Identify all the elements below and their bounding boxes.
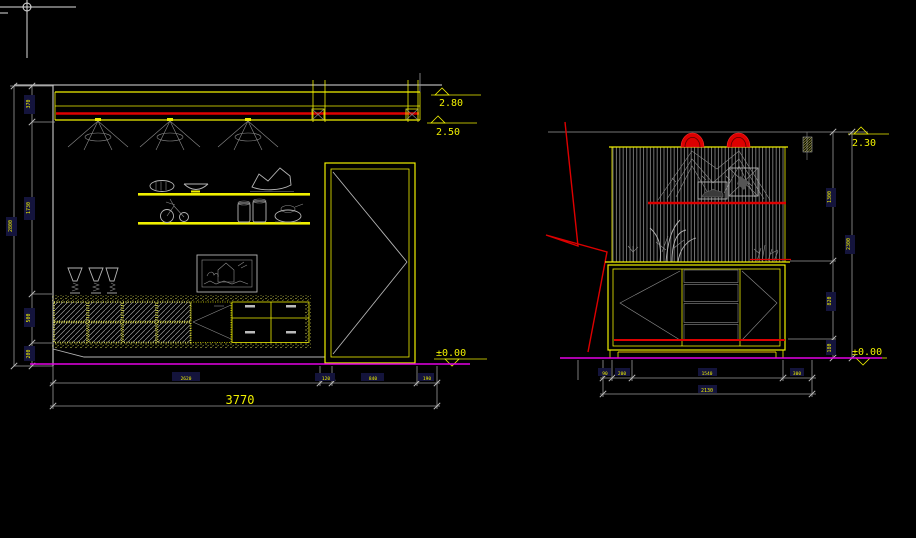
dim-text[interactable]: 820 xyxy=(827,296,833,305)
level-label[interactable]: 2.50 xyxy=(436,127,460,138)
dim-text[interactable]: 200 xyxy=(26,349,32,358)
level-label[interactable]: ±0.00 xyxy=(436,348,466,359)
drawer-handle[interactable] xyxy=(245,331,255,334)
slat-wall-panel[interactable] xyxy=(609,147,788,262)
cad-viewport[interactable]: 2.80 2.50 ±0.00 xyxy=(0,0,916,538)
dim-text[interactable]: 370 xyxy=(26,99,32,108)
dim-text[interactable]: 180 xyxy=(827,343,833,352)
dim-text[interactable]: 200 xyxy=(618,371,626,377)
level-label[interactable]: 2.80 xyxy=(439,98,463,109)
dim-text[interactable]: 90 xyxy=(602,371,608,377)
level-label[interactable]: ±0.00 xyxy=(852,347,882,358)
drawer-handle[interactable] xyxy=(286,331,296,334)
dim-text[interactable]: 2800 xyxy=(8,220,14,232)
dim-text[interactable]: 190 xyxy=(423,376,431,382)
dim-text[interactable]: 2300 xyxy=(846,238,852,250)
total-dimension-text[interactable]: 2130 xyxy=(701,388,713,394)
drawer-handle[interactable] xyxy=(245,305,255,308)
dim-text[interactable]: 300 xyxy=(793,371,801,377)
level-label[interactable]: 2.30 xyxy=(852,138,876,149)
dim-text[interactable]: 120 xyxy=(322,376,330,382)
dim-text[interactable]: 1540 xyxy=(702,371,713,377)
dim-text[interactable]: 1300 xyxy=(827,191,833,203)
total-dimension-text[interactable]: 3770 xyxy=(226,393,255,407)
wall-shelf[interactable] xyxy=(138,222,310,225)
dim-text[interactable]: 1730 xyxy=(26,202,32,214)
wall-shelf[interactable] xyxy=(138,193,310,196)
countertop[interactable] xyxy=(52,295,311,301)
drawer-handle[interactable] xyxy=(286,305,296,308)
dim-text[interactable]: 840 xyxy=(369,376,377,382)
dim-text[interactable]: 500 xyxy=(26,313,32,322)
dim-text[interactable]: 2620 xyxy=(181,376,192,382)
